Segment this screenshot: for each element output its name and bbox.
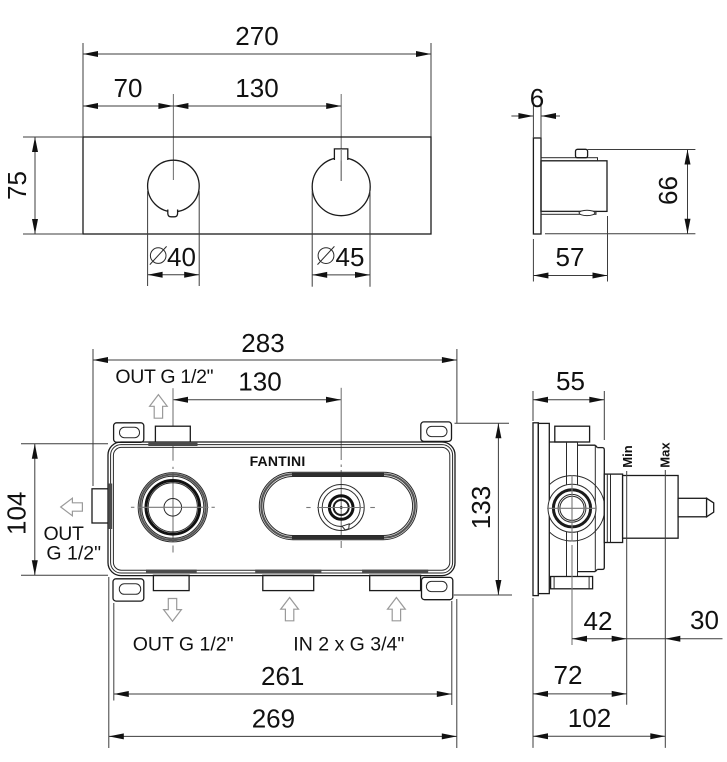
svg-text:283: 283 bbox=[241, 328, 284, 358]
svg-text:66: 66 bbox=[653, 176, 683, 205]
svg-text:130: 130 bbox=[238, 367, 281, 397]
svg-text:72: 72 bbox=[554, 660, 583, 690]
svg-text:FANTINI: FANTINI bbox=[250, 453, 306, 469]
svg-text:G 1/2": G 1/2" bbox=[46, 543, 101, 565]
svg-text:Min: Min bbox=[620, 445, 635, 467]
svg-text:269: 269 bbox=[252, 704, 295, 734]
svg-text:75: 75 bbox=[2, 171, 32, 200]
svg-text:OUT G 1/2": OUT G 1/2" bbox=[115, 366, 213, 388]
svg-text:104: 104 bbox=[2, 492, 32, 535]
svg-text:Max: Max bbox=[657, 442, 672, 468]
svg-text:55: 55 bbox=[556, 366, 585, 396]
svg-text:30: 30 bbox=[690, 605, 719, 635]
svg-text:70: 70 bbox=[114, 73, 143, 103]
svg-text:130: 130 bbox=[235, 73, 278, 103]
svg-text:133: 133 bbox=[466, 486, 496, 529]
svg-text:IN 2 x G 3/4": IN 2 x G 3/4" bbox=[293, 634, 404, 656]
svg-text:OUT: OUT bbox=[44, 523, 84, 545]
svg-text:45: 45 bbox=[336, 242, 365, 272]
svg-text:57: 57 bbox=[556, 242, 585, 272]
svg-text:42: 42 bbox=[584, 606, 613, 636]
svg-text:40: 40 bbox=[167, 242, 196, 272]
svg-text:6: 6 bbox=[530, 83, 544, 113]
svg-text:261: 261 bbox=[261, 661, 304, 691]
svg-text:OUT G 1/2": OUT G 1/2" bbox=[133, 634, 234, 656]
svg-text:102: 102 bbox=[568, 703, 611, 733]
svg-text:270: 270 bbox=[235, 21, 278, 51]
